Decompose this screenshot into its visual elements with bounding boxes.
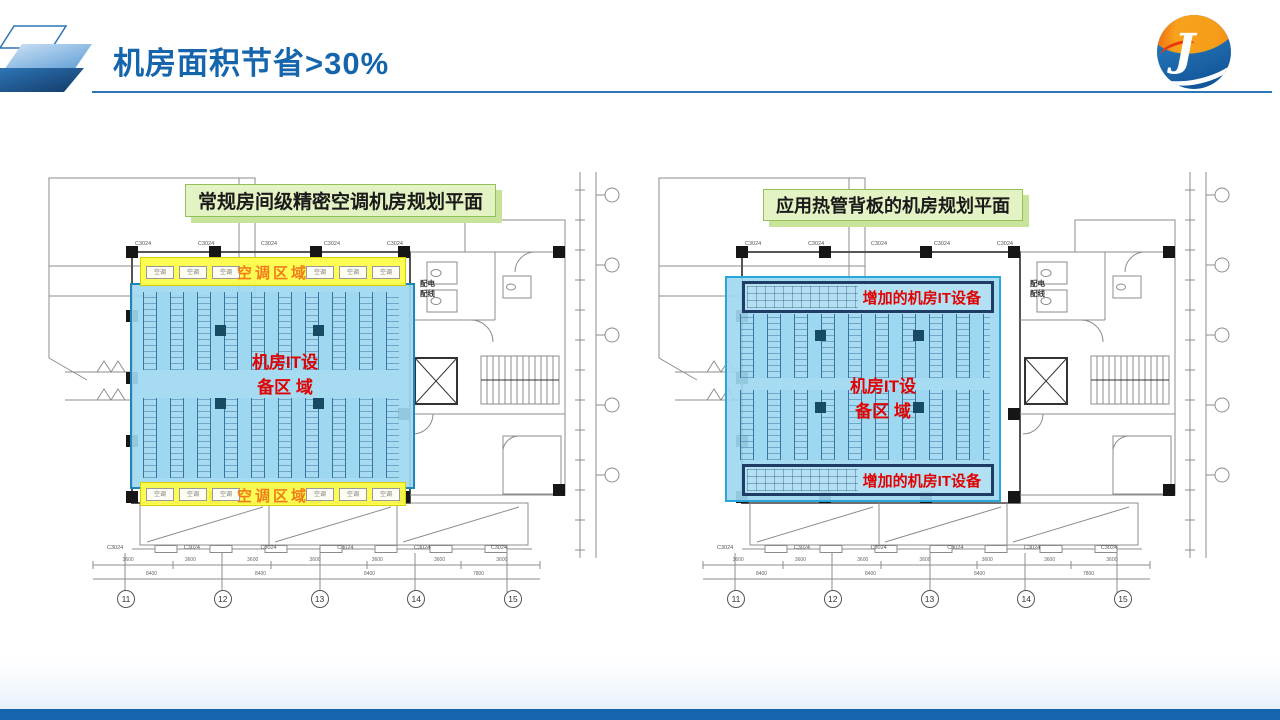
power-room-line2: 配线 <box>1030 289 1045 298</box>
it-zone-label: 机房IT设 备区 域 <box>185 350 385 400</box>
window-label: C3024 <box>324 242 340 248</box>
dimension-value: 3600 <box>982 558 993 563</box>
axis-bubble: 14 <box>407 590 425 608</box>
window-label: C3024 <box>1024 546 1040 552</box>
axis-bubble: 12 <box>214 590 232 608</box>
interior-column <box>913 330 924 341</box>
power-room-label: 配电 配线 <box>1030 279 1045 299</box>
dimension-value: 3600 <box>247 558 258 563</box>
added-it-label: 增加的机房IT设备 <box>863 287 981 308</box>
ac-zone-label: 空调区域 <box>141 485 405 506</box>
added-it-label: 增加的机房IT设备 <box>863 470 981 491</box>
title-underline <box>92 91 1272 93</box>
dimension-value: 3600 <box>1044 558 1055 563</box>
dimension-row-major: 8400840084007800 <box>707 572 1143 577</box>
axis-bubble: 11 <box>727 590 745 608</box>
window-label: C3024 <box>135 242 151 248</box>
window-label: C3024 <box>717 546 733 552</box>
it-zone-label: 机房IT设 备区 域 <box>783 374 983 424</box>
dimension-value: 3600 <box>496 558 507 563</box>
dimension-value: 3600 <box>309 558 320 563</box>
it-zone-label-line2: 备区 域 <box>855 402 911 421</box>
header-decoration <box>0 24 100 92</box>
dimension-row-minor: 3600360036003600360036003600 <box>97 558 533 563</box>
power-room-line2: 配线 <box>420 289 435 298</box>
window-label: C3024 <box>491 546 507 552</box>
dimension-value: 3600 <box>372 558 383 563</box>
dimension-value: 8400 <box>974 572 985 577</box>
dimension-value: 8400 <box>865 572 876 577</box>
window-label: C3024 <box>337 546 353 552</box>
dimension-row-major: 8400840084007800 <box>97 572 533 577</box>
server-rack-rows <box>740 314 990 378</box>
window-label: C3024 <box>414 546 430 552</box>
dimension-value: 3600 <box>434 558 445 563</box>
window-label: C3024 <box>261 546 277 552</box>
power-room-line1: 配电 <box>420 279 435 288</box>
axis-bubble: 13 <box>311 590 329 608</box>
window-labels-top: C3024C3024C3024C3024C3024 <box>135 242 403 248</box>
plan-caption: 应用热管背板的机房规划平面 <box>763 189 1023 221</box>
plan-caption: 常规房间级精密空调机房规划平面 <box>185 184 496 217</box>
footer-bar <box>0 709 1280 720</box>
axis-bubble: 14 <box>1017 590 1035 608</box>
footer-gradient <box>0 661 1280 709</box>
page-title: 机房面积节省>30% <box>113 38 389 83</box>
dimension-value: 8400 <box>756 572 767 577</box>
dimension-value: 3600 <box>185 558 196 563</box>
floor-plan-conventional: 空调空调空调 空调空调空调 空调区域 空调空调空调 空调空调空调 空调区域 机房… <box>35 150 625 620</box>
axis-bubble: 13 <box>921 590 939 608</box>
interior-column <box>815 330 826 341</box>
dimension-value: 3600 <box>1106 558 1117 563</box>
dimension-value: 3600 <box>857 558 868 563</box>
dimension-row-minor: 3600360036003600360036003600 <box>707 558 1143 563</box>
dimension-value: 3600 <box>123 558 134 563</box>
window-label: C3024 <box>997 242 1013 248</box>
window-label: C3024 <box>387 242 403 248</box>
window-labels-bottom: C3024C3024C3024C3024C3024C3024 <box>717 546 1117 552</box>
window-label: C3024 <box>871 546 887 552</box>
ac-zone-band-bottom: 空调空调空调 空调空调空调 空调区域 <box>140 482 406 506</box>
column-axis-labels: 1112131415 <box>117 590 522 608</box>
server-rack-rows <box>143 398 399 478</box>
it-zone-label-line1: 机房IT设 <box>850 377 916 396</box>
slide: { "slide": { "title": "机房面积节省>30%" }, "i… <box>0 0 1280 720</box>
dimension-value: 8400 <box>146 572 157 577</box>
window-label: C3024 <box>107 546 123 552</box>
column-axis-labels: 1112131415 <box>727 590 1132 608</box>
dimension-value: 3600 <box>919 558 930 563</box>
axis-bubble: 15 <box>504 590 522 608</box>
it-zone-label-line2: 备区 域 <box>257 378 313 397</box>
interior-column <box>313 325 324 336</box>
window-label: C3024 <box>184 546 200 552</box>
window-label: C3024 <box>947 546 963 552</box>
window-label: C3024 <box>261 242 277 248</box>
company-logo-icon: J <box>1157 15 1231 89</box>
added-rack-grid <box>747 469 858 491</box>
power-room-line1: 配电 <box>1030 279 1045 288</box>
dimension-value: 8400 <box>364 572 375 577</box>
power-room-label: 配电 配线 <box>420 279 435 299</box>
floor-plan-heat-pipe: 增加的机房IT设备 增加的机房IT设备 机房IT设 备区 域 应用热管背板的机房… <box>645 150 1235 620</box>
ac-zone-label: 空调区域 <box>141 262 405 283</box>
window-labels-bottom: C3024C3024C3024C3024C3024C3024 <box>107 546 507 552</box>
added-it-equipment-box-bottom: 增加的机房IT设备 <box>742 464 994 496</box>
dimension-value: 8400 <box>255 572 266 577</box>
axis-bubble: 11 <box>117 590 135 608</box>
window-label: C3024 <box>871 242 887 248</box>
axis-bubble: 15 <box>1114 590 1132 608</box>
added-it-equipment-box-top: 增加的机房IT设备 <box>742 281 994 313</box>
dimension-value: 3600 <box>795 558 806 563</box>
axis-bubble: 12 <box>824 590 842 608</box>
logo-letter: J <box>1174 25 1195 76</box>
dimension-value: 3600 <box>733 558 744 563</box>
window-label: C3024 <box>198 242 214 248</box>
dimension-value: 7800 <box>1083 572 1094 577</box>
window-label: C3024 <box>794 546 810 552</box>
window-labels-top: C3024C3024C3024C3024C3024 <box>745 242 1013 248</box>
window-label: C3024 <box>745 242 761 248</box>
dimension-value: 7800 <box>473 572 484 577</box>
ac-zone-band-top: 空调空调空调 空调空调空调 空调区域 <box>140 257 406 286</box>
interior-column <box>215 325 226 336</box>
window-label: C3024 <box>808 242 824 248</box>
added-rack-grid <box>747 286 858 308</box>
it-zone-label-line1: 机房IT设 <box>252 353 318 372</box>
window-label: C3024 <box>1101 546 1117 552</box>
window-label: C3024 <box>934 242 950 248</box>
